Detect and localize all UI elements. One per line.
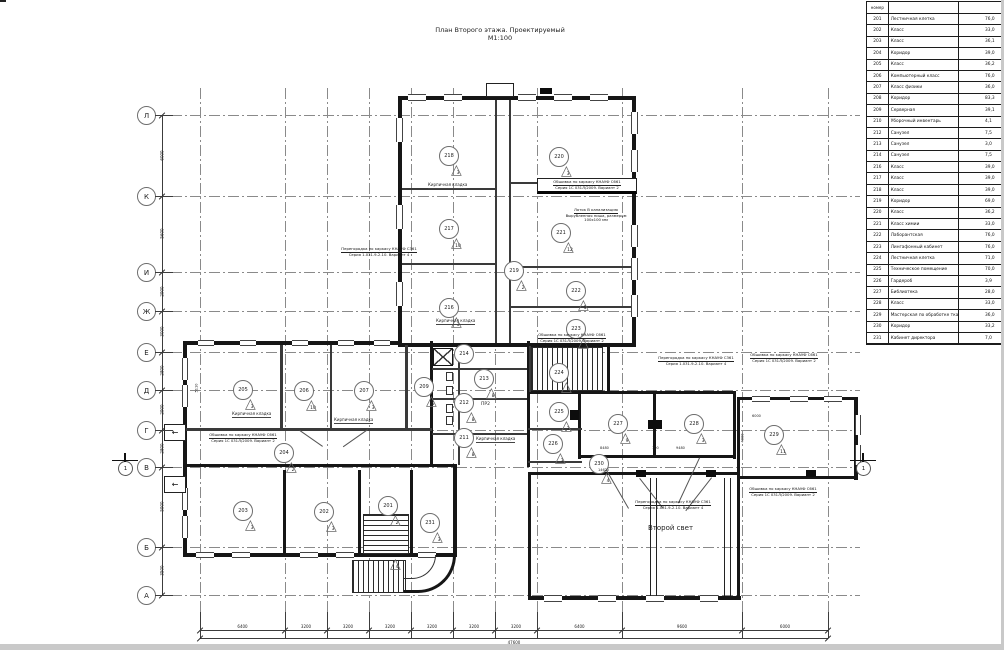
dimension-value: 3200 bbox=[418, 624, 446, 629]
dimension-extension bbox=[155, 196, 173, 197]
schedule-room-name: Мастерская по обработке тканей и техноло… bbox=[889, 310, 959, 320]
grid-line-horizontal bbox=[152, 467, 860, 468]
room-triangle: △5 bbox=[578, 301, 594, 314]
dimension-value: 3200 bbox=[376, 624, 404, 629]
schedule-room-name: Гардероб bbox=[889, 276, 959, 286]
section-mark: 1 bbox=[118, 461, 133, 476]
window-opening bbox=[232, 552, 250, 558]
wc-fixture bbox=[446, 372, 453, 381]
room-triangle: △3 bbox=[432, 533, 448, 546]
schedule-room-area: 7,5 bbox=[959, 151, 1004, 161]
schedule-room-area: 69,0 bbox=[959, 196, 1004, 206]
schedule-room-name: Уборочный инвентарь bbox=[889, 117, 959, 127]
schedule-room-area: 7,5 bbox=[959, 128, 1004, 138]
partition-wall bbox=[432, 398, 527, 400]
partition-wall bbox=[511, 266, 632, 268]
room-triangle: △3 bbox=[326, 522, 342, 535]
triangle-value: 8 bbox=[466, 418, 480, 423]
schedule-room-number: 208 bbox=[867, 94, 889, 104]
schedule-room-area: 4,1 bbox=[959, 117, 1004, 127]
window-opening bbox=[790, 396, 808, 402]
triangle-value: 3 bbox=[696, 439, 710, 444]
schedule-room-number: 220 bbox=[867, 208, 889, 218]
partition-wall bbox=[330, 345, 332, 429]
roof-access-box bbox=[486, 83, 514, 97]
schedule-row: 208Коридор83,3 bbox=[867, 94, 1004, 105]
window-opening bbox=[544, 595, 562, 602]
dimension-extension bbox=[155, 467, 173, 468]
schedule-room-name: Класс bbox=[889, 162, 959, 172]
dimension-line-bottom bbox=[200, 630, 828, 631]
wall-segment bbox=[578, 391, 581, 459]
schedule-room-area: 3,0 bbox=[959, 139, 1004, 149]
title-line1: План Второго этажа. Проектируемый bbox=[360, 26, 640, 34]
title-scale: М1:100 bbox=[360, 34, 640, 42]
room-triangle: △3 bbox=[561, 422, 577, 435]
dimension-extension bbox=[155, 430, 173, 431]
triangle-value: 3 bbox=[245, 526, 259, 531]
column-pier bbox=[540, 88, 552, 94]
triangle-value: 3 bbox=[578, 344, 592, 349]
construction-note: Обшивка по каркасу КНАУФ С661Серия 1С 03… bbox=[742, 487, 824, 497]
schedule-room-number: 207 bbox=[867, 82, 889, 92]
schedule-room-number: 231 bbox=[867, 333, 889, 343]
grid-line-vertical bbox=[828, 88, 829, 612]
grid-bubble-letter: Д bbox=[137, 381, 156, 400]
room-triangle: △10 bbox=[306, 401, 322, 414]
grid-line-horizontal bbox=[152, 547, 860, 548]
schedule-room-area: 70,0 bbox=[959, 265, 1004, 275]
wall-segment bbox=[733, 391, 736, 459]
schedule-row: 201Лестничная клетка76,0 bbox=[867, 14, 1004, 25]
dimension-value: 6400 bbox=[566, 624, 594, 629]
section-mark: 1 bbox=[856, 461, 871, 476]
triangle-value: 11 bbox=[776, 450, 790, 455]
note-line: Серия 1С 031Л/2009. Вариант 2 bbox=[528, 339, 616, 344]
window-opening bbox=[396, 282, 403, 306]
window-opening bbox=[396, 118, 403, 142]
schedule-room-number: 227 bbox=[867, 287, 889, 297]
plan-text: 100 bbox=[652, 446, 659, 450]
wall-segment bbox=[453, 467, 457, 557]
dimension-extension bbox=[285, 612, 286, 638]
schedule-room-number: 229 bbox=[867, 310, 889, 320]
schedule-room-name: Коридор bbox=[889, 196, 959, 206]
column-pier bbox=[636, 470, 646, 477]
wall-segment bbox=[410, 470, 413, 555]
grid-line-horizontal bbox=[152, 311, 860, 312]
room-triangle: △3 bbox=[451, 166, 467, 179]
plan-text: 6000 bbox=[752, 414, 761, 418]
partition-wall bbox=[405, 345, 408, 429]
wall-segment bbox=[737, 397, 740, 600]
schedule-room-number: 218 bbox=[867, 185, 889, 195]
entry-arrow: ← bbox=[164, 476, 186, 493]
dimension-extension bbox=[155, 547, 173, 548]
room-triangle: △5 bbox=[426, 397, 442, 410]
column-pier bbox=[648, 420, 662, 429]
room-triangle: △3 bbox=[245, 521, 261, 534]
schedule-room-name: Санузел bbox=[889, 128, 959, 138]
wc-fixture bbox=[446, 386, 453, 395]
room-schedule-table: номер 201Лестничная клетка76,0202Класс33… bbox=[866, 1, 1004, 345]
window-opening bbox=[824, 396, 842, 402]
schedule-room-name: Компьютерный класс bbox=[889, 71, 959, 81]
schedule-room-area: 39,0 bbox=[959, 173, 1004, 183]
room-triangle: △2 bbox=[286, 463, 302, 476]
dimension-value: 3200 bbox=[502, 624, 530, 629]
window-opening bbox=[631, 150, 638, 172]
triangle-value: 3 bbox=[366, 406, 380, 411]
partition-wall bbox=[432, 433, 527, 435]
dimension-value: 6000 bbox=[771, 624, 799, 629]
dimension-value-left: 5600 bbox=[160, 220, 165, 248]
schedule-room-number: 225 bbox=[867, 265, 889, 275]
triangle-value: 2 bbox=[390, 521, 404, 526]
schedule-row: 223Лингафонный кабинет76,0 bbox=[867, 242, 1004, 253]
schedule-room-area: 76,0 bbox=[959, 242, 1004, 252]
schedule-room-name: Класс bbox=[889, 37, 959, 47]
room-triangle: △9 bbox=[620, 434, 636, 447]
schedule-row: 228Класс33,0 bbox=[867, 299, 1004, 310]
schedule-room-number: 228 bbox=[867, 299, 889, 309]
schedule-room-area: 71,0 bbox=[959, 253, 1004, 263]
room-triangle: △4 bbox=[601, 474, 617, 487]
dimension-extension bbox=[742, 612, 743, 638]
triangle-value: 3 bbox=[561, 172, 575, 177]
triangle-value: 3 bbox=[245, 405, 259, 410]
room-triangle: △2 bbox=[516, 281, 532, 294]
triangle-value: 8 bbox=[486, 394, 500, 399]
schedule-room-number: 219 bbox=[867, 196, 889, 206]
leader-line bbox=[299, 430, 323, 447]
schedule-room-name: Серверная bbox=[889, 105, 959, 115]
window-opening bbox=[855, 415, 861, 435]
schedule-room-number: 216 bbox=[867, 162, 889, 172]
note-line: Серия 1.031.9-2.10. Вариант 4 bbox=[655, 362, 737, 367]
room-triangle: △8 bbox=[466, 448, 482, 461]
schedule-room-number: 202 bbox=[867, 25, 889, 35]
note-line: Серия 1С 031Л/2009. Вариант 2 bbox=[200, 439, 286, 444]
schedule-room-area: 39,0 bbox=[959, 48, 1004, 58]
window-opening bbox=[336, 552, 354, 558]
schedule-room-number: 224 bbox=[867, 253, 889, 263]
schedule-room-area: 33,0 bbox=[959, 219, 1004, 229]
schedule-room-area: 33,0 bbox=[959, 25, 1004, 35]
schedule-room-area: 36,0 bbox=[959, 82, 1004, 92]
schedule-room-area: 28,0 bbox=[959, 287, 1004, 297]
dimension-extension bbox=[155, 311, 173, 312]
plan-text: 5110 bbox=[194, 384, 198, 393]
window-opening bbox=[752, 396, 770, 402]
schedule-room-number: 221 bbox=[867, 219, 889, 229]
room-triangle: △2 bbox=[561, 383, 577, 396]
schedule-row: 229Мастерская по обработке тканей и техн… bbox=[867, 310, 1004, 321]
dimension-extension bbox=[828, 612, 829, 638]
column-pier bbox=[706, 470, 716, 477]
wall-segment bbox=[283, 470, 286, 555]
schedule-row: 230Коридор33,2 bbox=[867, 322, 1004, 333]
window-opening bbox=[631, 112, 638, 134]
schedule-room-area: 33,0 bbox=[959, 299, 1004, 309]
construction-note: Перегородка по каркасу КНАУФ С361Серия 1… bbox=[330, 247, 428, 257]
triangle-value: 3 bbox=[326, 527, 340, 532]
schedule-room-area: 36,2 bbox=[959, 208, 1004, 218]
schedule-row: 210Уборочный инвентарь4,1 bbox=[867, 117, 1004, 128]
drawing-title: План Второго этажа. Проектируемый М1:100 bbox=[360, 26, 640, 42]
schedule-room-area: 39,0 bbox=[959, 162, 1004, 172]
schedule-room-name: Класс bbox=[889, 299, 959, 309]
plan-text: Второй свет bbox=[648, 524, 693, 532]
room-bubble: 214 bbox=[454, 344, 474, 364]
construction-note: Лоток В канализациюВырубленная ниша, раз… bbox=[552, 208, 640, 223]
schedule-room-name: Коридор bbox=[889, 94, 959, 104]
schedule-row: 212Санузел7,5 bbox=[867, 128, 1004, 139]
note-line: Серия 1.031.9-2.10. Вариант 4 bbox=[625, 506, 721, 511]
schedule-row: 203Класс36,1 bbox=[867, 37, 1004, 48]
grid-line-vertical bbox=[622, 88, 623, 612]
schedule-row: 209Серверная39,1 bbox=[867, 105, 1004, 116]
dimension-value: 9600 bbox=[668, 624, 696, 629]
room-triangle: △11 bbox=[776, 445, 792, 458]
window-opening bbox=[196, 552, 214, 558]
plan-text: 9480 bbox=[676, 446, 685, 450]
construction-note: Перегородка по каркасу КНАУФ С361Серия 1… bbox=[655, 356, 737, 366]
schedule-row: 204Коридор39,0 bbox=[867, 48, 1004, 59]
entry-arrow: ← bbox=[164, 424, 186, 441]
schedule-room-number: 222 bbox=[867, 230, 889, 240]
note-line: Серия 1С 031Л/2009. Вариант 2 bbox=[742, 493, 824, 498]
dimension-extension bbox=[155, 272, 173, 273]
dimension-extension bbox=[155, 352, 173, 353]
window-opening bbox=[374, 340, 390, 346]
grid-line-vertical bbox=[742, 88, 743, 612]
schedule-room-name: Класс bbox=[889, 185, 959, 195]
dimension-value-left: 3500 bbox=[160, 557, 165, 585]
dimension-extension bbox=[155, 115, 173, 116]
room-triangle: △8 bbox=[466, 413, 482, 426]
schedule-row: 207Класс физики36,0 bbox=[867, 82, 1004, 93]
plan-text: 14620 bbox=[598, 468, 609, 472]
schedule-room-name: Лестничная клетка bbox=[889, 14, 959, 24]
triangle-value: 5 bbox=[578, 306, 592, 311]
schedule-row: 213Санузел3,0 bbox=[867, 139, 1004, 150]
triangle-value: 5 bbox=[426, 402, 440, 407]
schedule-room-name: Коридор bbox=[889, 322, 959, 332]
dimension-extension bbox=[537, 612, 538, 638]
schedule-row: 218Класс39,0 bbox=[867, 185, 1004, 196]
triangle-value: 10 bbox=[306, 406, 320, 411]
schedule-room-name: Класс физики bbox=[889, 82, 959, 92]
window-opening bbox=[182, 385, 188, 407]
schedule-room-name: Класс bbox=[889, 60, 959, 70]
window-opening bbox=[631, 295, 638, 317]
window-opening bbox=[182, 516, 188, 538]
schedule-room-number: 223 bbox=[867, 242, 889, 252]
schedule-room-number: 212 bbox=[867, 128, 889, 138]
room-triangle: △3 bbox=[555, 454, 571, 467]
room-triangle: △12 bbox=[563, 243, 579, 256]
schedule-row: 216Класс39,0 bbox=[867, 162, 1004, 173]
schedule-header-row: номер bbox=[867, 2, 1004, 14]
schedule-room-name: Техническое помещение bbox=[889, 265, 959, 275]
dimension-value: 3200 bbox=[334, 624, 362, 629]
window-opening bbox=[631, 258, 638, 280]
brickwork-label: Кирпичная кладка bbox=[436, 318, 475, 325]
grid-bubble-letter: Г bbox=[137, 421, 156, 440]
schedule-room-area: 39,0 bbox=[959, 185, 1004, 195]
schedule-room-area: 7,0 bbox=[959, 333, 1004, 343]
window-opening bbox=[518, 94, 536, 101]
window-opening bbox=[700, 595, 718, 602]
triangle-value: 4 bbox=[390, 565, 404, 570]
window-opening bbox=[198, 340, 214, 346]
dimension-extension bbox=[327, 612, 328, 638]
window-opening bbox=[396, 205, 403, 229]
construction-note: Обшивка по каркасу КНАУФ С661Серия 1С 03… bbox=[744, 353, 824, 363]
room-triangle: △8 bbox=[486, 389, 502, 402]
section-mark-line bbox=[850, 460, 876, 461]
elevator-shaft bbox=[433, 348, 453, 366]
dimension-value: 3200 bbox=[460, 624, 488, 629]
schedule-room-name: Санузел bbox=[889, 139, 959, 149]
brickwork-label: Кирпичная кладка bbox=[334, 417, 373, 424]
construction-note: Обшивка по каркасу КНАУФ С661Серия 1С 03… bbox=[200, 433, 286, 443]
schedule-header-num: номер bbox=[867, 2, 889, 13]
window-opening bbox=[240, 340, 256, 346]
brickwork-label: Кирпичная кладка bbox=[476, 436, 515, 443]
grid-bubble-letter: В bbox=[137, 458, 156, 477]
partition-wall bbox=[186, 428, 432, 431]
schedule-room-number: 214 bbox=[867, 151, 889, 161]
schedule-header-name bbox=[889, 2, 959, 13]
section-mark-line bbox=[112, 460, 138, 461]
schedule-room-number: 205 bbox=[867, 60, 889, 70]
construction-note: Обшивка по каркасу КНАУФ С661Серия 1С 03… bbox=[537, 178, 637, 194]
schedule-row: 206Компьютерный класс76,0 bbox=[867, 71, 1004, 82]
triangle-value: 9 bbox=[620, 439, 634, 444]
triangle-value: 10 bbox=[451, 244, 465, 249]
dimension-tick bbox=[825, 635, 831, 641]
schedule-row: 227Библиотека28,0 bbox=[867, 287, 1004, 298]
dimension-extension bbox=[155, 390, 173, 391]
triangle-value: 2 bbox=[286, 468, 300, 473]
room-triangle: △4 bbox=[390, 560, 406, 573]
grid-bubble-letter: А bbox=[137, 586, 156, 605]
dimension-extension bbox=[369, 612, 370, 638]
plan-text: 8480 bbox=[600, 446, 609, 450]
triangle-value: 8 bbox=[466, 453, 480, 458]
schedule-row: 202Класс33,0 bbox=[867, 25, 1004, 36]
dimension-value-left: 2900 bbox=[160, 277, 165, 305]
schedule-room-number: 204 bbox=[867, 48, 889, 58]
schedule-room-area: 36,1 bbox=[959, 37, 1004, 47]
grid-line-horizontal bbox=[152, 595, 860, 596]
schedule-row: 220Класс36,2 bbox=[867, 208, 1004, 219]
schedule-room-area: 83,3 bbox=[959, 94, 1004, 104]
schedule-room-number: 203 bbox=[867, 37, 889, 47]
window-opening bbox=[444, 94, 462, 101]
triangle-value: 3 bbox=[451, 171, 465, 176]
construction-note: Обшивка по каркасу КНАУФ С661Серия 1С 03… bbox=[528, 333, 616, 343]
schedule-room-name: Класс bbox=[889, 208, 959, 218]
schedule-room-name: Класс bbox=[889, 173, 959, 183]
schedule-room-number: 210 bbox=[867, 117, 889, 127]
schedule-room-number: 226 bbox=[867, 276, 889, 286]
schedule-room-name: Библиотека bbox=[889, 287, 959, 297]
grid-line-horizontal bbox=[152, 115, 860, 116]
plan-text: ПР2 bbox=[481, 402, 490, 407]
triangle-value: 3 bbox=[555, 459, 569, 464]
grid-bubble-letter: Б bbox=[137, 538, 156, 557]
schedule-row: 221Класс химии33,0 bbox=[867, 219, 1004, 230]
wall-segment bbox=[528, 472, 531, 600]
hall-column bbox=[724, 478, 731, 596]
schedule-row: 231Кабинет директора7,0 bbox=[867, 333, 1004, 344]
wc-fixture bbox=[446, 404, 453, 413]
schedule-room-name: Лингафонный кабинет bbox=[889, 242, 959, 252]
dimension-value-left: 2900 bbox=[160, 396, 165, 424]
schedule-room-area: 36,2 bbox=[959, 60, 1004, 70]
grid-line-horizontal bbox=[152, 196, 860, 197]
room-triangle: △3 bbox=[696, 434, 712, 447]
grid-line-vertical bbox=[200, 88, 201, 612]
drawing-sheet: План Второго этажа. Проектируемый М1:100… bbox=[0, 0, 1004, 650]
schedule-room-name: Кабинет директора bbox=[889, 333, 959, 343]
schedule-room-name: Класс bbox=[889, 25, 959, 35]
schedule-room-number: 201 bbox=[867, 14, 889, 24]
partition-wall bbox=[402, 263, 495, 265]
window-opening bbox=[554, 94, 572, 101]
window-opening bbox=[646, 595, 664, 602]
construction-note: Перегородка по каркасу КНАУФ С361Серия 1… bbox=[625, 500, 721, 510]
schedule-row: 222Лаборантская76,0 bbox=[867, 230, 1004, 241]
note-line: Серия 1.031.9-2.10. Вариант 4 bbox=[330, 253, 428, 258]
viewport-bottom-edge bbox=[0, 644, 1004, 650]
window-opening bbox=[598, 595, 616, 602]
triangle-value: 4 bbox=[601, 479, 615, 484]
schedule-room-number: 209 bbox=[867, 105, 889, 115]
dimension-extension bbox=[622, 612, 623, 638]
schedule-header-area bbox=[959, 2, 1004, 13]
note-line: Серия 1С 031Л/2009. Вариант 2 bbox=[540, 186, 634, 191]
leader-line bbox=[343, 429, 368, 447]
room-triangle: △3 bbox=[366, 401, 382, 414]
brickwork-label: Кирпичная кладка bbox=[428, 182, 467, 189]
wall-segment bbox=[607, 343, 610, 393]
wall-segment bbox=[578, 391, 736, 394]
grid-bubble-letter: Ж bbox=[137, 302, 156, 321]
wall-segment bbox=[358, 470, 361, 555]
schedule-room-number: 213 bbox=[867, 139, 889, 149]
schedule-room-area: 76,0 bbox=[959, 14, 1004, 24]
schedule-row: 226Гардероб3,9 bbox=[867, 276, 1004, 287]
wall-segment bbox=[183, 464, 457, 467]
dimension-value-left: 2800 bbox=[160, 434, 165, 462]
column-pier bbox=[806, 470, 816, 477]
dimension-value-left: 2800 bbox=[160, 357, 165, 385]
grid-bubble-letter: Е bbox=[137, 343, 156, 362]
schedule-room-area: 76,0 bbox=[959, 71, 1004, 81]
note-line: Серия 1С 031Л/2009. Вариант 2 bbox=[744, 359, 824, 364]
triangle-value: 3 bbox=[561, 427, 575, 432]
brickwork-label: Кирпичная кладка bbox=[232, 411, 271, 418]
dimension-value-left: 5900 bbox=[160, 493, 165, 521]
schedule-room-name: Коридор bbox=[889, 48, 959, 58]
note-line: 100х100 мм bbox=[552, 218, 640, 223]
schedule-room-area: 3,9 bbox=[959, 276, 1004, 286]
schedule-room-name: Лаборантская bbox=[889, 230, 959, 240]
